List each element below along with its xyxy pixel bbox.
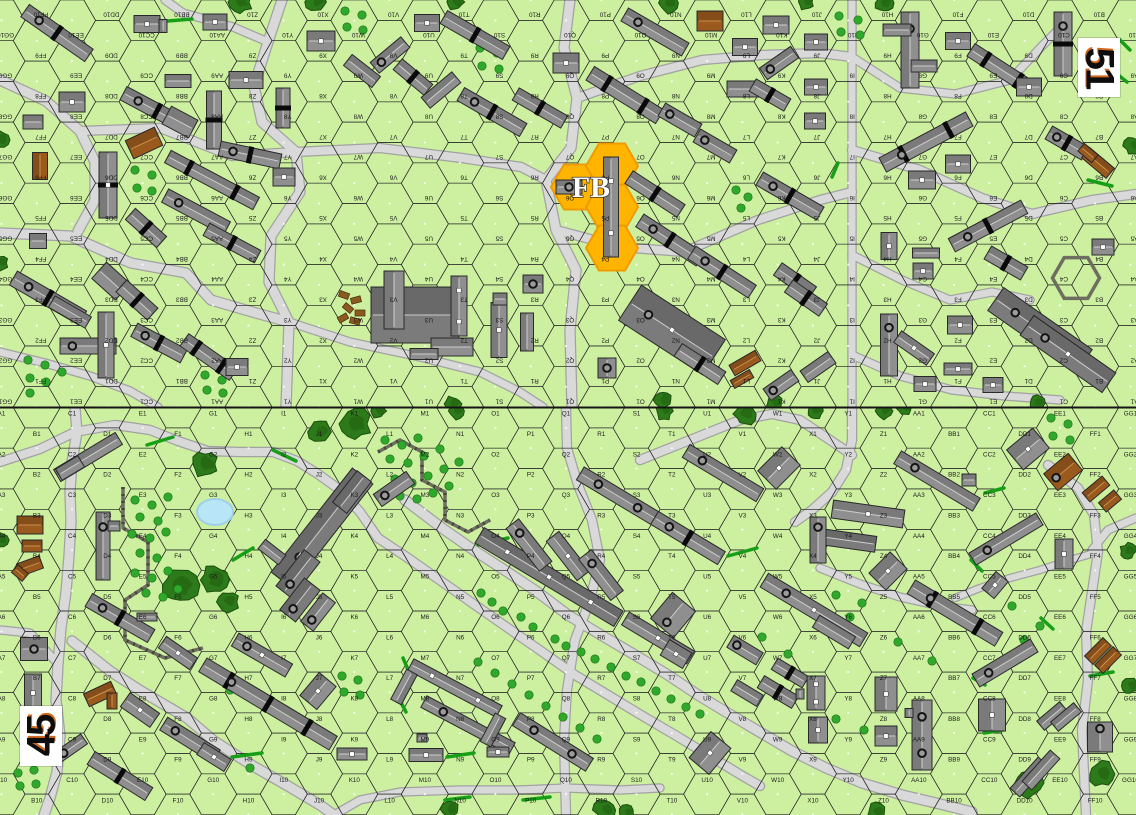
hex-center-dot (177, 284, 179, 286)
svg-text:K1: K1 (350, 411, 358, 418)
svg-text:GG8: GG8 (0, 112, 12, 119)
svg-text:FF6: FF6 (35, 174, 47, 181)
svg-text:N5: N5 (456, 594, 465, 601)
stone-building (901, 12, 919, 88)
svg-text:V4: V4 (389, 255, 397, 262)
hex-center-dot (1, 753, 3, 755)
hex-center-dot (1130, 712, 1132, 714)
svg-text:B3: B3 (1095, 296, 1103, 303)
svg-text:DD9: DD9 (1018, 757, 1031, 764)
svg-text:I10: I10 (847, 31, 856, 38)
hex-center-dot (71, 793, 73, 795)
svg-text:CC9: CC9 (140, 72, 153, 79)
hex-center-dot (36, 40, 38, 42)
hex-center-dot (318, 284, 320, 286)
svg-text:Z2: Z2 (248, 336, 256, 343)
svg-text:U4: U4 (424, 275, 433, 282)
hex-center-dot (283, 223, 285, 225)
svg-text:GG3: GG3 (0, 316, 12, 323)
hex-center-dot (353, 304, 355, 306)
svg-text:D7: D7 (103, 675, 112, 682)
svg-text:R8: R8 (597, 716, 606, 723)
svg-text:I4: I4 (281, 533, 287, 540)
svg-text:O10: O10 (489, 777, 501, 784)
svg-text:I5: I5 (849, 235, 855, 242)
svg-text:J3: J3 (316, 512, 323, 519)
svg-text:S2: S2 (633, 451, 641, 458)
stone-building (796, 689, 804, 699)
svg-text:EE2: EE2 (70, 357, 82, 364)
svg-text:X4: X4 (809, 553, 817, 560)
hex-center-dot (777, 712, 779, 714)
stone-building (979, 699, 1006, 731)
hex-center-dot (318, 203, 320, 205)
svg-text:S3: S3 (633, 492, 641, 499)
svg-text:DD10: DD10 (103, 11, 120, 18)
svg-text:W8: W8 (353, 112, 363, 119)
svg-text:P6: P6 (527, 635, 535, 642)
svg-text:Z9: Z9 (248, 51, 256, 58)
svg-text:W1: W1 (353, 397, 363, 404)
hex-center-dot (530, 40, 532, 42)
svg-text:I4: I4 (849, 275, 855, 282)
svg-text:W2: W2 (353, 357, 363, 364)
svg-text:EE10: EE10 (1052, 777, 1068, 784)
hex-center-dot (988, 753, 990, 755)
svg-text:B1: B1 (1095, 377, 1103, 384)
svg-text:S2: S2 (495, 357, 503, 364)
hex-center-dot (742, 610, 744, 612)
hedge-segment (168, 19, 192, 21)
svg-text:R7: R7 (530, 133, 539, 140)
svg-text:N3: N3 (456, 512, 465, 519)
hex-center-dot (918, 223, 920, 225)
svg-text:G9: G9 (209, 736, 218, 743)
hex-center-dot (706, 182, 708, 184)
hex-center-dot (1059, 182, 1061, 184)
svg-text:G2: G2 (209, 451, 218, 458)
svg-text:D6: D6 (1024, 174, 1033, 181)
svg-text:B3: B3 (33, 512, 41, 519)
svg-text:A1: A1 (1130, 397, 1136, 404)
svg-text:E1: E1 (989, 397, 997, 404)
svg-text:AA8: AA8 (913, 696, 925, 703)
hex-center-dot (424, 223, 426, 225)
svg-text:A5: A5 (0, 574, 6, 581)
hex-center-dot (1130, 427, 1132, 429)
svg-text:W3: W3 (773, 492, 783, 499)
svg-text:BB9: BB9 (175, 51, 187, 58)
hex-center-dot (1130, 182, 1132, 184)
hex-center-dot (777, 142, 779, 144)
hex-center-dot (883, 40, 885, 42)
hex-center-dot (1, 345, 3, 347)
hex-center-dot (706, 631, 708, 633)
hex-center-dot (1, 304, 3, 306)
hex-center-dot (318, 162, 320, 164)
svg-text:S10: S10 (493, 31, 505, 38)
svg-text:Y1: Y1 (283, 397, 291, 404)
svg-text:J10: J10 (811, 11, 822, 18)
svg-text:A10: A10 (0, 777, 8, 784)
svg-text:E8: E8 (139, 696, 147, 703)
hex-center-dot (36, 488, 38, 490)
hex-center-dot (424, 631, 426, 633)
svg-text:X10: X10 (807, 797, 819, 804)
stone-building (491, 303, 507, 358)
svg-text:F5: F5 (954, 214, 962, 221)
svg-text:G4: G4 (209, 533, 218, 540)
board-number-51: 51 (1078, 38, 1120, 97)
svg-text:DD8: DD8 (105, 92, 118, 99)
svg-text:R6: R6 (597, 635, 606, 642)
hex-center-dot (530, 121, 532, 123)
hex-center-dot (883, 651, 885, 653)
hex-center-dot (953, 773, 955, 775)
svg-text:Y2: Y2 (844, 451, 852, 458)
stone-building (226, 359, 248, 376)
svg-text:F9: F9 (954, 51, 962, 58)
svg-text:AA10: AA10 (209, 31, 225, 38)
svg-text:L5: L5 (386, 594, 394, 601)
svg-text:M1: M1 (706, 397, 715, 404)
svg-text:C10: C10 (66, 777, 78, 784)
svg-text:N6: N6 (456, 635, 465, 642)
svg-text:N9: N9 (456, 757, 465, 764)
hex-center-dot (847, 142, 849, 144)
svg-text:J8: J8 (316, 716, 323, 723)
svg-text:Q10: Q10 (564, 31, 576, 38)
svg-text:U2: U2 (424, 357, 433, 364)
hex-center-dot (1, 101, 3, 103)
hex-center-dot (283, 793, 285, 795)
svg-text:A1: A1 (0, 411, 6, 418)
svg-text:O5: O5 (491, 574, 500, 581)
hex-center-dot (565, 427, 567, 429)
hex-center-dot (71, 712, 73, 714)
hex-center-dot (777, 223, 779, 225)
svg-text:S5: S5 (495, 235, 503, 242)
svg-text:S4: S4 (633, 533, 641, 540)
svg-text:D3: D3 (103, 512, 112, 519)
svg-text:H7: H7 (244, 675, 253, 682)
hex-center-dot (495, 793, 497, 795)
hex-center-dot (1024, 732, 1026, 734)
svg-text:GG6: GG6 (0, 194, 12, 201)
hex-center-dot (459, 243, 461, 245)
hex-center-dot (177, 40, 179, 42)
hex-center-dot (636, 793, 638, 795)
svg-text:A4: A4 (1130, 275, 1136, 282)
svg-text:R3: R3 (530, 296, 539, 303)
hex-center-dot (283, 345, 285, 347)
svg-text:Q7: Q7 (565, 153, 574, 160)
hex-center-dot (212, 386, 214, 388)
hex-center-dot (918, 101, 920, 103)
svg-text:M2: M2 (420, 451, 429, 458)
svg-text:M3: M3 (420, 492, 429, 499)
svg-text:I7: I7 (849, 153, 855, 160)
map-canvas[interactable]: A1A2A3A4A5A6A7A8A9A10B1B2B3B4B5B6B7B8B9B… (0, 0, 1136, 815)
hex-center-dot (318, 325, 320, 327)
svg-text:C8: C8 (68, 696, 77, 703)
svg-text:CC6: CC6 (140, 194, 153, 201)
hex-center-dot (424, 590, 426, 592)
hex-center-dot (918, 508, 920, 510)
hex-center-dot (142, 753, 144, 755)
hex-center-dot (318, 365, 320, 367)
svg-text:I10: I10 (279, 777, 288, 784)
svg-text:CC10: CC10 (138, 31, 155, 38)
svg-text:R2: R2 (597, 472, 606, 479)
stone-building (409, 749, 443, 762)
svg-text:M5: M5 (706, 235, 715, 242)
svg-text:BB10: BB10 (174, 11, 190, 18)
hex-center-dot (495, 101, 497, 103)
hex-center-dot (883, 488, 885, 490)
svg-text:I1: I1 (281, 411, 287, 418)
svg-text:H6: H6 (244, 635, 253, 642)
svg-text:K8: K8 (350, 696, 358, 703)
hex-center-dot (1, 671, 3, 673)
svg-text:DD7: DD7 (105, 133, 118, 140)
svg-text:C2: C2 (1059, 357, 1068, 364)
svg-text:CC9: CC9 (983, 736, 996, 743)
hex-center-dot (283, 60, 285, 62)
svg-text:CC1: CC1 (140, 397, 153, 404)
svg-text:AA1: AA1 (913, 411, 925, 418)
svg-text:W5: W5 (353, 235, 363, 242)
svg-text:I8: I8 (281, 696, 287, 703)
svg-text:W9: W9 (353, 72, 363, 79)
svg-text:L4: L4 (742, 255, 750, 262)
board-seam-divider (0, 407, 1136, 409)
hex-center-dot (1, 631, 3, 633)
hex-center-dot (1, 590, 3, 592)
board-number-51-text: 51 (1079, 47, 1119, 88)
hex-center-dot (812, 447, 814, 449)
svg-text:AA9: AA9 (211, 72, 223, 79)
svg-text:F4: F4 (174, 553, 182, 560)
svg-text:K3: K3 (350, 492, 358, 499)
svg-text:T4: T4 (668, 553, 676, 560)
svg-text:BB8: BB8 (948, 716, 960, 723)
svg-text:G9: G9 (918, 72, 927, 79)
hex-center-dot (742, 162, 744, 164)
hex-center-dot (530, 365, 532, 367)
hex-center-dot (1, 712, 3, 714)
svg-text:P4: P4 (601, 255, 609, 262)
svg-text:K7: K7 (350, 655, 358, 662)
svg-text:H9: H9 (883, 51, 892, 58)
svg-text:N3: N3 (671, 296, 680, 303)
svg-text:GG10: GG10 (0, 31, 14, 38)
hex-center-dot (459, 651, 461, 653)
hex-center-dot (1130, 223, 1132, 225)
svg-text:G6: G6 (918, 194, 927, 201)
hex-center-dot (71, 223, 73, 225)
svg-text:BB9: BB9 (948, 757, 960, 764)
svg-text:E10: E10 (987, 31, 999, 38)
svg-text:O4: O4 (636, 275, 645, 282)
svg-text:U8: U8 (703, 696, 712, 703)
svg-text:AA2: AA2 (913, 451, 925, 458)
hex-center-dot (71, 671, 73, 673)
hex-center-dot (1, 182, 3, 184)
svg-text:K6: K6 (350, 614, 358, 621)
hex-center-dot (847, 549, 849, 551)
hex-center-dot (459, 162, 461, 164)
hex-center-dot (71, 549, 73, 551)
hex-center-dot (636, 427, 638, 429)
svg-text:GG8: GG8 (1124, 696, 1136, 703)
hex-center-dot (706, 590, 708, 592)
svg-text:FF9: FF9 (35, 51, 47, 58)
hex-center-dot (883, 447, 885, 449)
hex-center-dot (353, 101, 355, 103)
hex-center-dot (671, 284, 673, 286)
hex-center-dot (142, 427, 144, 429)
hex-center-dot (283, 20, 285, 22)
svg-text:W10: W10 (351, 31, 364, 38)
svg-text:G10: G10 (207, 777, 219, 784)
stone-building (962, 474, 976, 486)
hex-center-dot (565, 468, 567, 470)
wooden-building (107, 693, 117, 709)
hex-center-dot (1094, 529, 1096, 531)
svg-text:B5: B5 (1095, 214, 1103, 221)
svg-text:BB1: BB1 (948, 431, 960, 438)
svg-text:I9: I9 (849, 72, 855, 79)
svg-text:E7: E7 (139, 655, 147, 662)
svg-text:FF2: FF2 (35, 336, 47, 343)
hex-center-dot (283, 386, 285, 388)
svg-text:L4: L4 (386, 553, 394, 560)
hex-center-dot (847, 427, 849, 429)
svg-text:Y1: Y1 (844, 411, 852, 418)
hex-center-dot (212, 712, 214, 714)
svg-text:F2: F2 (954, 336, 962, 343)
svg-text:A7: A7 (0, 655, 6, 662)
svg-text:H3: H3 (244, 512, 253, 519)
svg-text:K5: K5 (350, 574, 358, 581)
hex-center-dot (671, 81, 673, 83)
hex-center-dot (248, 447, 250, 449)
svg-text:EE5: EE5 (1054, 574, 1066, 581)
hex-center-dot (459, 569, 461, 571)
svg-text:Z6: Z6 (880, 635, 888, 642)
hex-center-dot (1024, 365, 1026, 367)
svg-text:I8: I8 (849, 112, 855, 119)
svg-text:DD3: DD3 (1018, 512, 1031, 519)
svg-text:D3: D3 (1024, 296, 1033, 303)
hex-center-dot (600, 284, 602, 286)
svg-text:AA8: AA8 (211, 112, 223, 119)
svg-text:B5: B5 (33, 594, 41, 601)
hex-center-dot (812, 773, 814, 775)
svg-text:A9: A9 (0, 736, 6, 743)
svg-text:X1: X1 (319, 377, 327, 384)
svg-text:E3: E3 (989, 316, 997, 323)
hex-center-dot (883, 529, 885, 531)
hex-center-dot (389, 529, 391, 531)
svg-text:CC2: CC2 (983, 451, 996, 458)
stone-building (59, 92, 85, 112)
svg-text:U7: U7 (703, 655, 712, 662)
hex-center-dot (1059, 304, 1061, 306)
svg-text:H4: H4 (883, 255, 892, 262)
hex-center-dot (248, 121, 250, 123)
svg-text:M7: M7 (706, 153, 715, 160)
svg-text:J4: J4 (316, 553, 323, 560)
svg-text:V6: V6 (389, 174, 397, 181)
hex-center-dot (918, 304, 920, 306)
svg-text:F6: F6 (954, 174, 962, 181)
svg-text:FF2: FF2 (1090, 472, 1102, 479)
svg-text:V7: V7 (389, 133, 397, 140)
svg-text:G7: G7 (918, 153, 927, 160)
svg-text:R9: R9 (530, 51, 539, 58)
svg-text:Z3: Z3 (248, 296, 256, 303)
svg-text:P7: P7 (527, 675, 535, 682)
svg-text:O5: O5 (636, 235, 645, 242)
svg-text:O7: O7 (636, 153, 645, 160)
hex-center-dot (988, 508, 990, 510)
hex-center-dot (459, 203, 461, 205)
svg-text:H1: H1 (244, 431, 253, 438)
hex-center-dot (212, 631, 214, 633)
hex-center-dot (353, 345, 355, 347)
svg-text:EE6: EE6 (1054, 614, 1066, 621)
hex-center-dot (671, 162, 673, 164)
hex-center-dot (424, 793, 426, 795)
svg-text:S9: S9 (495, 72, 503, 79)
svg-text:P5: P5 (527, 594, 535, 601)
hex-center-dot (600, 773, 602, 775)
svg-text:W4: W4 (353, 275, 363, 282)
svg-text:GG5: GG5 (1124, 574, 1136, 581)
hex-center-dot (142, 345, 144, 347)
svg-text:F2: F2 (174, 472, 182, 479)
svg-text:V1: V1 (389, 377, 397, 384)
hex-center-dot (212, 549, 214, 551)
svg-text:Y7: Y7 (283, 153, 291, 160)
hex-center-dot (106, 651, 108, 653)
hex-center-dot (812, 243, 814, 245)
svg-text:A3: A3 (0, 492, 6, 499)
stone-building (911, 60, 937, 72)
svg-text:X8: X8 (319, 92, 327, 99)
hex-center-dot (530, 243, 532, 245)
svg-text:BB4: BB4 (175, 255, 187, 262)
svg-text:M1: M1 (420, 411, 429, 418)
svg-text:EE6: EE6 (70, 194, 82, 201)
hex-center-dot (1130, 468, 1132, 470)
svg-text:C9: C9 (68, 736, 77, 743)
stone-building (493, 293, 507, 305)
svg-text:W7: W7 (353, 153, 363, 160)
svg-text:O6: O6 (636, 194, 645, 201)
hex-center-dot (248, 488, 250, 490)
hex-center-dot (742, 243, 744, 245)
hex-center-dot (248, 325, 250, 327)
hex-center-dot (847, 468, 849, 470)
stone-building (275, 88, 291, 128)
hex-center-dot (1024, 569, 1026, 571)
hex-center-dot (600, 121, 602, 123)
hex-center-dot (177, 365, 179, 367)
hex-center-dot (530, 0, 532, 1)
